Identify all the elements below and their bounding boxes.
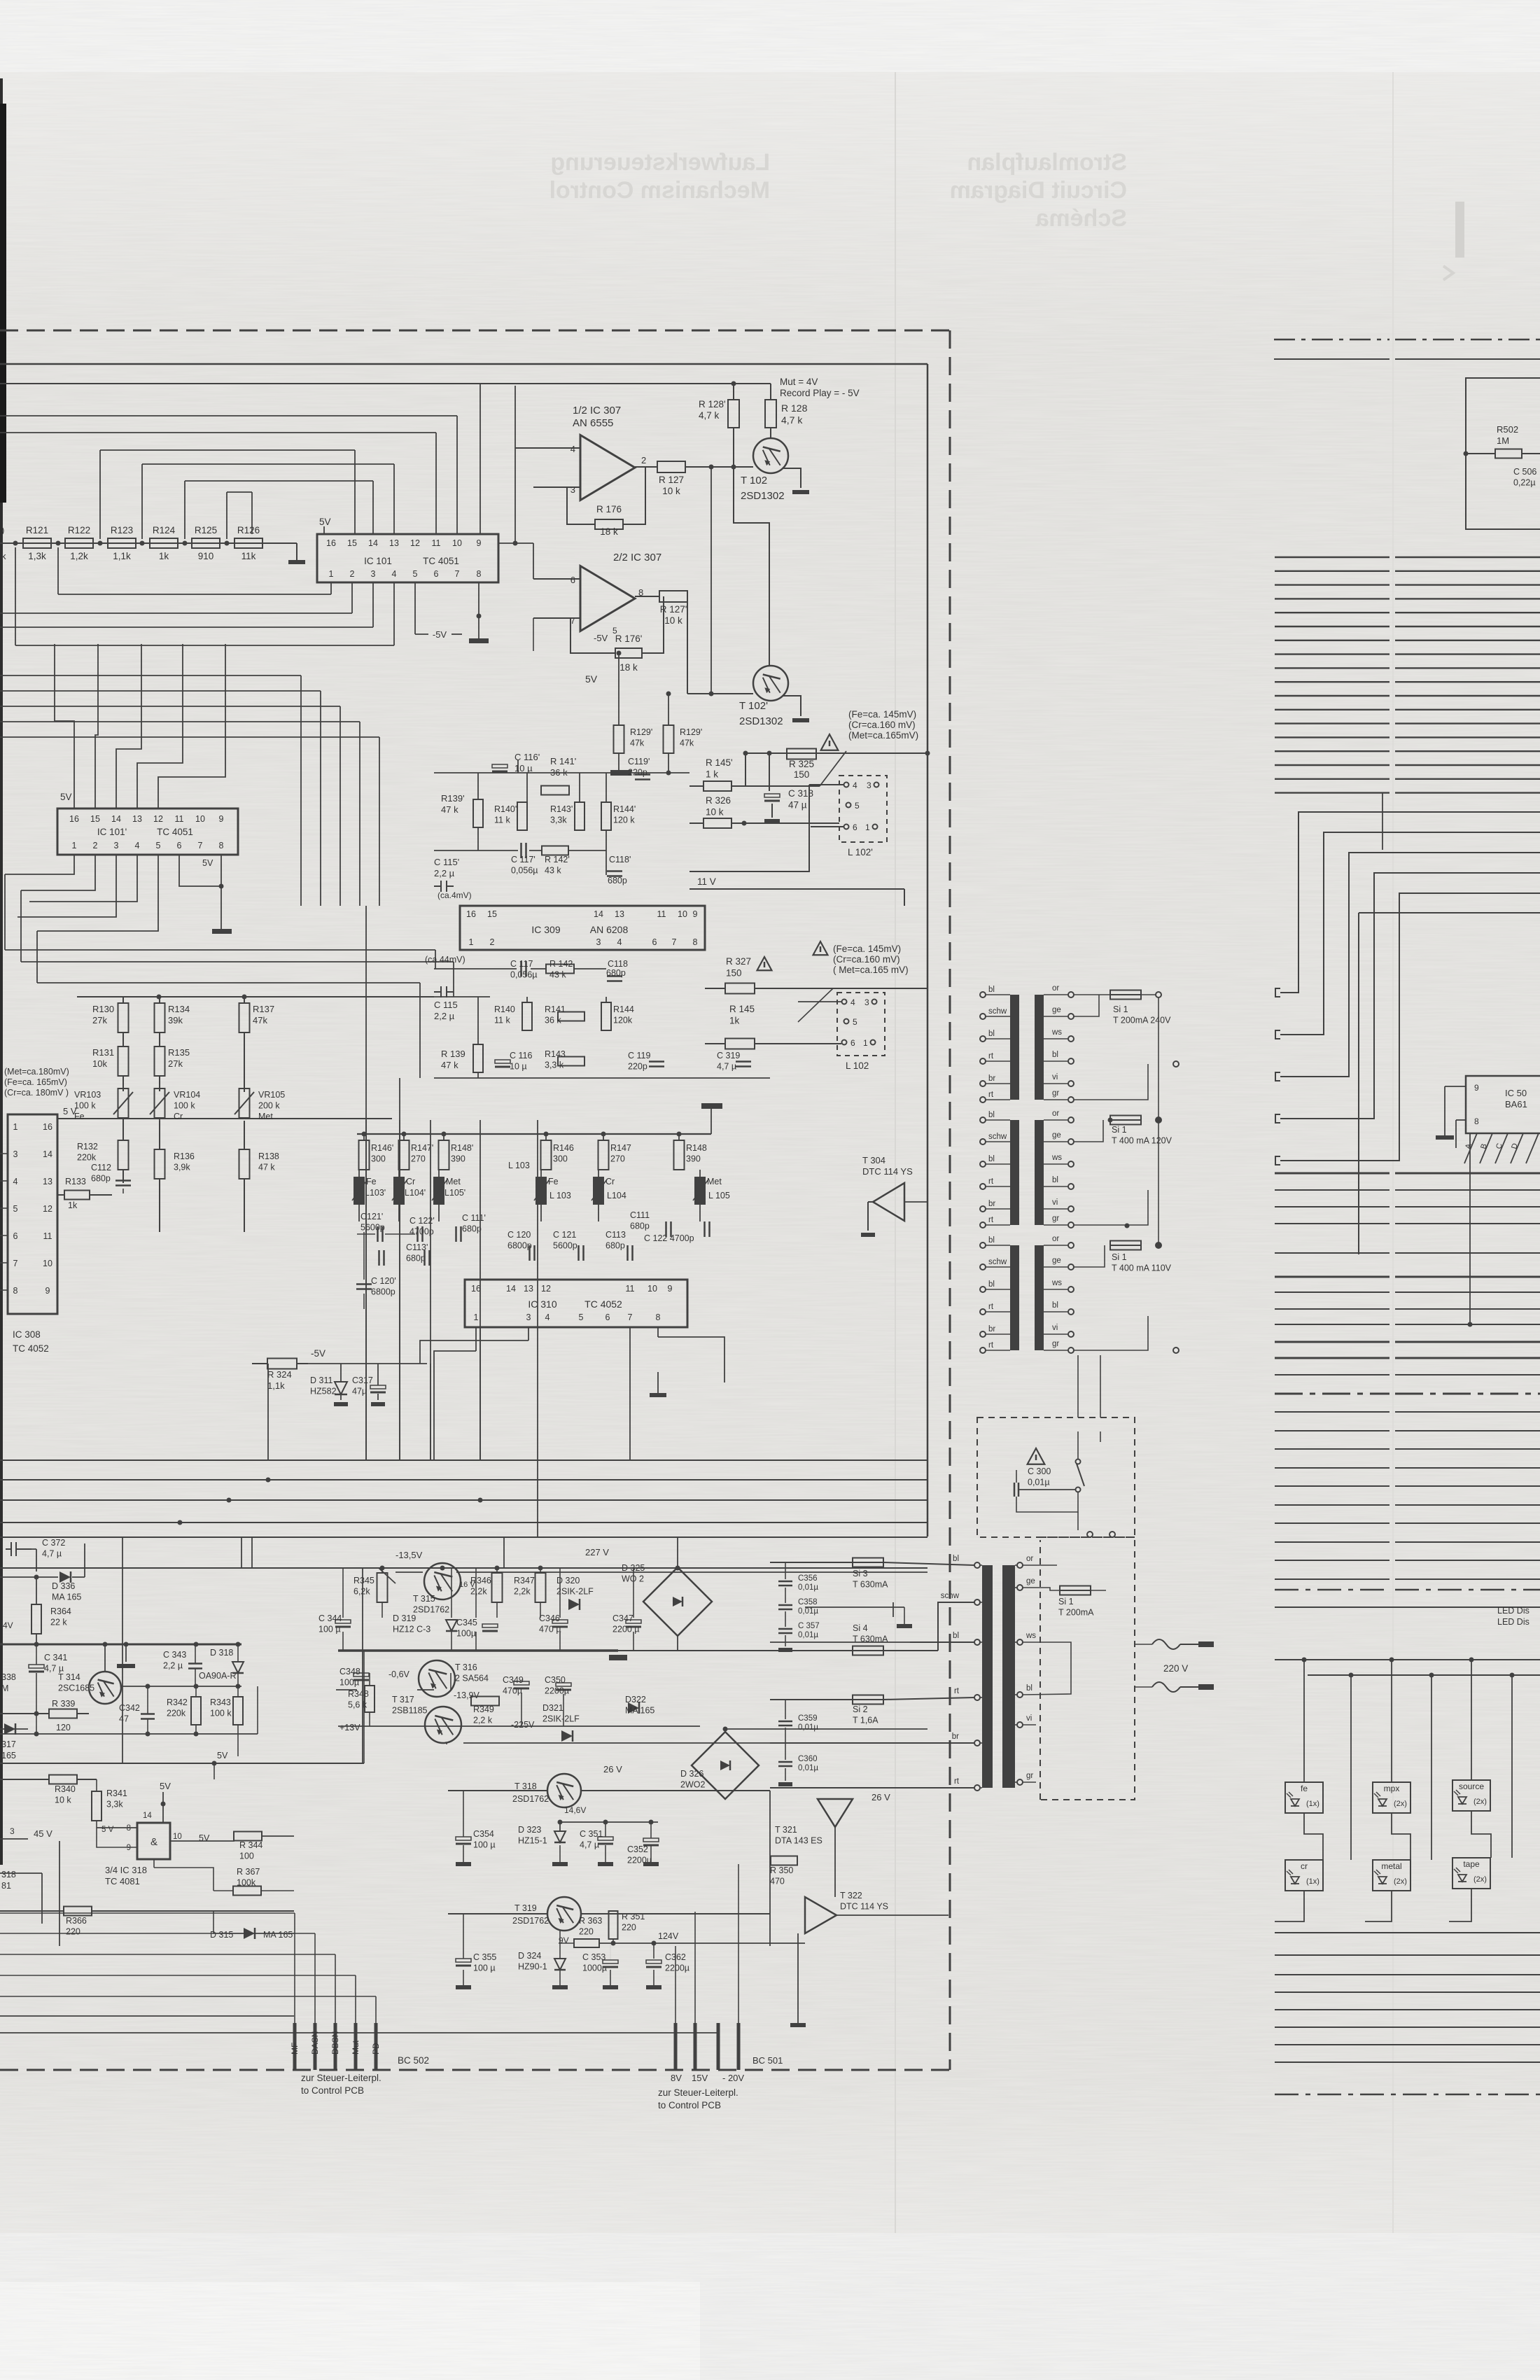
svg-text:14: 14 <box>43 1149 52 1159</box>
svg-text:R 350: R 350 <box>770 1865 793 1875</box>
svg-text:18 k: 18 k <box>600 526 618 537</box>
svg-text:D 326: D 326 <box>680 1769 703 1779</box>
svg-text:5V: 5V <box>202 858 213 868</box>
svg-text:9: 9 <box>668 1284 673 1294</box>
svg-text:C 111': C 111' <box>462 1213 486 1223</box>
svg-text:R137: R137 <box>253 1004 274 1014</box>
svg-text:4: 4 <box>850 997 855 1007</box>
svg-text:43 k: 43 k <box>545 866 561 876</box>
svg-text:4,7 k: 4,7 k <box>781 414 803 426</box>
svg-text:C348: C348 <box>339 1667 360 1676</box>
svg-text:26 V: 26 V <box>871 1792 890 1802</box>
svg-text:R125: R125 <box>195 525 217 535</box>
svg-text:2,2 µ: 2,2 µ <box>434 1011 455 1021</box>
svg-text:9: 9 <box>1474 1083 1479 1093</box>
svg-text:1M: 1M <box>1497 435 1509 446</box>
svg-text:schw: schw <box>941 1592 960 1600</box>
svg-text:C 116': C 116' <box>514 752 540 762</box>
svg-text:ws: ws <box>1051 1028 1062 1037</box>
svg-text:R 339: R 339 <box>52 1699 75 1709</box>
svg-text:910: 910 <box>198 551 214 561</box>
svg-text:3: 3 <box>526 1312 531 1322</box>
svg-text:(Cr=ca. 180mV ): (Cr=ca. 180mV ) <box>4 1088 69 1098</box>
svg-text:D321: D321 <box>542 1703 563 1713</box>
svg-text:16: 16 <box>69 814 79 824</box>
svg-text:C 319: C 319 <box>717 1051 740 1060</box>
svg-text:br: br <box>988 1200 995 1208</box>
svg-text:27k: 27k <box>168 1058 183 1069</box>
svg-text:2/2 IC 307: 2/2 IC 307 <box>613 552 661 563</box>
svg-text:R132: R132 <box>77 1142 98 1151</box>
svg-text:ge: ge <box>1052 1131 1061 1140</box>
svg-text:1/2 IC 307: 1/2 IC 307 <box>573 405 621 416</box>
svg-text:4: 4 <box>853 780 857 790</box>
svg-text:R123: R123 <box>111 525 133 535</box>
svg-text:C 300: C 300 <box>1028 1466 1051 1476</box>
svg-text:T 315: T 315 <box>413 1594 435 1604</box>
svg-text:14: 14 <box>506 1284 516 1294</box>
svg-text:3,9k: 3,9k <box>174 1163 190 1172</box>
svg-text:MA 165: MA 165 <box>263 1930 293 1940</box>
svg-text:C354: C354 <box>473 1829 494 1839</box>
svg-text:Cr: Cr <box>605 1177 615 1186</box>
svg-text:3: 3 <box>570 484 575 495</box>
svg-text:-0,6V: -0,6V <box>388 1669 410 1679</box>
svg-text:C113: C113 <box>605 1230 626 1240</box>
svg-text:Si 2: Si 2 <box>853 1704 868 1714</box>
svg-text:(Fe=ca. 145mV): (Fe=ca. 145mV) <box>833 944 901 954</box>
svg-text:T 304: T 304 <box>862 1155 885 1165</box>
svg-text:1k: 1k <box>159 551 169 561</box>
svg-text:(Met=ca.165mV): (Met=ca.165mV) <box>848 730 918 741</box>
svg-text:11 V: 11 V <box>697 876 716 887</box>
svg-text:R364: R364 <box>50 1606 71 1616</box>
svg-text:TC 4052: TC 4052 <box>13 1343 49 1354</box>
svg-text:C352: C352 <box>627 1844 648 1854</box>
svg-text:5600p: 5600p <box>553 1241 577 1251</box>
svg-text:227 V: 227 V <box>585 1547 609 1557</box>
svg-text:3: 3 <box>13 1149 18 1159</box>
svg-text:R133: R133 <box>65 1177 86 1186</box>
svg-text:T 200mA 240V: T 200mA 240V <box>1113 1016 1171 1025</box>
svg-text:220: 220 <box>622 1923 636 1933</box>
svg-text:2SD1762: 2SD1762 <box>512 1916 549 1926</box>
svg-text:5V: 5V <box>585 673 598 685</box>
svg-text:100 µ: 100 µ <box>473 1963 496 1973</box>
svg-text:C347: C347 <box>612 1613 633 1623</box>
svg-text:ws: ws <box>1051 1154 1062 1162</box>
svg-text:Laufwerksteuerung: Laufwerksteuerung <box>550 149 770 176</box>
svg-text:AN 6555: AN 6555 <box>573 417 613 429</box>
svg-text:R 326: R 326 <box>706 795 731 806</box>
svg-text:D 311: D 311 <box>310 1375 332 1385</box>
svg-text:2SIK-2LF: 2SIK-2LF <box>542 1714 580 1724</box>
svg-text:C 120': C 120' <box>371 1276 396 1286</box>
svg-text:R129': R129' <box>680 727 702 737</box>
svg-text:DASN: DASN <box>310 2031 320 2054</box>
svg-text:220 V: 220 V <box>1163 1663 1188 1674</box>
svg-text:rt: rt <box>988 1052 994 1060</box>
svg-text:1: 1 <box>863 1038 868 1048</box>
svg-text:100 k: 100 k <box>174 1101 195 1111</box>
svg-text:Si 1: Si 1 <box>1112 1125 1127 1135</box>
svg-text:43 k: 43 k <box>549 970 566 980</box>
svg-text:tape: tape <box>1463 1859 1480 1869</box>
svg-text:124V: 124V <box>658 1931 679 1941</box>
svg-text:3: 3 <box>371 569 376 579</box>
svg-text:39k: 39k <box>168 1015 183 1025</box>
svg-text:2: 2 <box>641 455 646 465</box>
svg-text:Fe: Fe <box>366 1177 377 1186</box>
svg-text:rt: rt <box>988 1177 994 1186</box>
svg-text:5: 5 <box>13 1204 18 1214</box>
svg-text:C346: C346 <box>539 1613 560 1623</box>
svg-text:Cr: Cr <box>174 1112 183 1121</box>
svg-text:12: 12 <box>43 1204 52 1214</box>
svg-text:10: 10 <box>647 1284 657 1294</box>
svg-text:bl: bl <box>988 986 995 994</box>
svg-text:bl: bl <box>988 1280 995 1289</box>
svg-text:R144': R144' <box>613 804 636 814</box>
svg-text:R 324: R 324 <box>267 1369 292 1380</box>
svg-text:13: 13 <box>524 1284 533 1294</box>
svg-text:D 323: D 323 <box>518 1825 541 1835</box>
svg-text:1,2k: 1,2k <box>70 551 88 561</box>
svg-text:(Fe=ca. 165mV): (Fe=ca. 165mV) <box>4 1077 67 1087</box>
svg-text:12: 12 <box>541 1284 551 1294</box>
svg-text:R140: R140 <box>494 1004 515 1014</box>
svg-text:6800p: 6800p <box>371 1287 395 1297</box>
svg-text:( Met=ca.165 mV): ( Met=ca.165 mV) <box>833 965 909 975</box>
svg-text:T 200mA: T 200mA <box>1058 1608 1094 1618</box>
svg-text:3/4 IC 318: 3/4 IC 318 <box>105 1865 147 1875</box>
svg-text:470 µ: 470 µ <box>539 1625 561 1634</box>
svg-text:10 k: 10 k <box>662 486 680 496</box>
svg-text:6800p: 6800p <box>507 1241 532 1251</box>
svg-text:16: 16 <box>326 538 336 548</box>
svg-text:Mut = 4V: Mut = 4V <box>780 377 818 387</box>
svg-text:(Met=ca.180mV): (Met=ca.180mV) <box>4 1067 69 1077</box>
svg-text:Si 3: Si 3 <box>853 1569 868 1578</box>
svg-text:47 k: 47 k <box>441 804 458 815</box>
svg-text:R 325: R 325 <box>789 759 814 769</box>
svg-text:R 127: R 127 <box>659 475 684 485</box>
svg-text:47 k: 47 k <box>441 1060 458 1070</box>
svg-text:TC 4051: TC 4051 <box>423 556 459 566</box>
svg-text:11 k: 11 k <box>494 1016 510 1025</box>
svg-text:schw: schw <box>988 1133 1007 1141</box>
svg-text:R146: R146 <box>553 1143 574 1153</box>
svg-text:5V: 5V <box>160 1781 171 1791</box>
svg-text:R347: R347 <box>514 1576 535 1585</box>
svg-text:7: 7 <box>455 569 460 579</box>
svg-text:11 k: 11 k <box>494 815 510 825</box>
svg-text:T 316: T 316 <box>455 1662 477 1672</box>
svg-text:br: br <box>988 1074 995 1083</box>
svg-text:C 120: C 120 <box>507 1230 531 1240</box>
svg-text:BC 501: BC 501 <box>752 2055 783 2066</box>
svg-text:R138: R138 <box>258 1151 279 1161</box>
svg-text:5: 5 <box>413 569 418 579</box>
svg-text:100k: 100k <box>237 1878 256 1888</box>
svg-text:7: 7 <box>672 937 677 947</box>
svg-text:36 k: 36 k <box>545 1016 561 1025</box>
svg-text:Fe: Fe <box>548 1177 559 1186</box>
svg-text:470: 470 <box>770 1877 785 1886</box>
svg-text:6: 6 <box>853 822 857 832</box>
svg-text:16: 16 <box>471 1284 481 1294</box>
svg-text:R139': R139' <box>441 793 465 804</box>
svg-text:source: source <box>1459 1781 1484 1791</box>
svg-text:vi: vi <box>1052 1073 1058 1081</box>
svg-text:R135: R135 <box>168 1047 190 1058</box>
svg-text:R143: R143 <box>545 1049 566 1059</box>
svg-text:&: & <box>150 1836 157 1848</box>
svg-text:+13V: +13V <box>339 1723 360 1732</box>
svg-text:2: 2 <box>93 841 98 850</box>
svg-text:14: 14 <box>143 1812 152 1820</box>
svg-text:317: 317 <box>1 1739 16 1749</box>
svg-text:0,01µ: 0,01µ <box>798 1583 818 1592</box>
svg-text:R 176': R 176' <box>615 633 643 644</box>
svg-text:3,3 k: 3,3 k <box>545 1060 564 1070</box>
svg-text:mpx: mpx <box>1384 1784 1400 1793</box>
svg-text:rt: rt <box>988 1091 994 1099</box>
svg-text:4: 4 <box>617 937 622 947</box>
svg-text:DTC 114 YS: DTC 114 YS <box>862 1166 913 1177</box>
svg-text:R 128: R 128 <box>781 402 808 414</box>
svg-text:T 102: T 102 <box>741 475 767 486</box>
svg-text:1,3k: 1,3k <box>28 551 46 561</box>
svg-text:bl: bl <box>1052 1301 1058 1310</box>
svg-text:br: br <box>988 1325 995 1333</box>
svg-text:165: 165 <box>1 1751 16 1760</box>
svg-text:10 µ: 10 µ <box>514 763 533 773</box>
svg-text:10: 10 <box>195 814 205 824</box>
svg-text:Cr: Cr <box>406 1177 415 1186</box>
svg-text:220p: 220p <box>628 1062 647 1072</box>
svg-text:-13,9V: -13,9V <box>454 1690 479 1700</box>
svg-text:vi: vi <box>1026 1714 1032 1723</box>
svg-text:1k: 1k <box>68 1200 78 1210</box>
svg-text:C118': C118' <box>609 855 631 864</box>
svg-text:9: 9 <box>219 814 224 824</box>
svg-text:Stromlaufplan: Stromlaufplan <box>967 149 1127 176</box>
svg-text:R345: R345 <box>353 1576 374 1585</box>
svg-text:gr: gr <box>1052 1089 1059 1098</box>
svg-text:C 506: C 506 <box>1513 467 1536 477</box>
svg-text:10: 10 <box>452 538 462 548</box>
svg-text:390: 390 <box>686 1154 701 1164</box>
svg-text:5V: 5V <box>319 517 331 527</box>
svg-text:R148: R148 <box>686 1143 707 1153</box>
svg-text:IC 309: IC 309 <box>531 924 560 935</box>
svg-text:T 400 mA 110V: T 400 mA 110V <box>1112 1263 1172 1273</box>
svg-text:to Control PCB: to Control PCB <box>301 2085 364 2096</box>
svg-text:100µ: 100µ <box>456 1629 476 1639</box>
svg-text:680p: 680p <box>630 1221 650 1231</box>
svg-text:6: 6 <box>434 569 439 579</box>
svg-text:47k: 47k <box>630 738 645 748</box>
svg-text:-13,5V: -13,5V <box>395 1550 423 1560</box>
svg-text:100µ: 100µ <box>339 1678 359 1688</box>
svg-text:C 355: C 355 <box>473 1952 496 1962</box>
svg-text:2SD1302: 2SD1302 <box>739 715 783 727</box>
svg-text:1,1k: 1,1k <box>267 1380 285 1391</box>
svg-text:1: 1 <box>72 841 77 850</box>
svg-text:47 k: 47 k <box>258 1163 275 1172</box>
svg-text:R348: R348 <box>348 1689 369 1699</box>
svg-text:D 319: D 319 <box>393 1613 416 1623</box>
svg-text:bl: bl <box>988 1236 995 1245</box>
svg-text:BA61: BA61 <box>1505 1099 1527 1109</box>
svg-text:1: 1 <box>13 1122 18 1132</box>
svg-text:L 102': L 102' <box>848 847 873 857</box>
svg-text:R349: R349 <box>473 1704 494 1714</box>
svg-text:4V: 4V <box>3 1620 13 1630</box>
svg-text:R 141': R 141' <box>550 756 576 766</box>
svg-text:13: 13 <box>43 1177 52 1186</box>
svg-text:or: or <box>1052 1235 1059 1243</box>
svg-text:120: 120 <box>56 1723 71 1732</box>
svg-text:C121': C121' <box>360 1212 383 1221</box>
svg-text:C 122 4700p: C 122 4700p <box>644 1233 694 1243</box>
svg-text:16: 16 <box>466 909 476 919</box>
svg-text:11: 11 <box>175 814 184 824</box>
svg-text:D 336: D 336 <box>52 1581 75 1591</box>
svg-text:(2x): (2x) <box>1394 1800 1407 1808</box>
svg-text:(Cr=ca.160 mV): (Cr=ca.160 mV) <box>833 954 900 965</box>
svg-text:5: 5 <box>855 801 860 811</box>
svg-text:C 115: C 115 <box>434 1000 458 1010</box>
svg-text:4,7 k: 4,7 k <box>699 410 720 421</box>
svg-text:10: 10 <box>173 1833 182 1841</box>
svg-text:bl: bl <box>953 1555 959 1563</box>
svg-text:C358: C358 <box>798 1598 818 1606</box>
svg-text:C 116: C 116 <box>510 1051 532 1060</box>
svg-text:R122: R122 <box>68 525 90 535</box>
svg-text:9: 9 <box>45 1286 50 1296</box>
svg-text:ge: ge <box>1052 1256 1061 1265</box>
svg-text:C118: C118 <box>608 959 628 969</box>
svg-text:ws: ws <box>1051 1279 1062 1287</box>
svg-text:7: 7 <box>13 1259 18 1268</box>
svg-text:rt: rt <box>988 1341 994 1350</box>
svg-text:6: 6 <box>13 1231 18 1241</box>
svg-text:6: 6 <box>570 575 575 585</box>
svg-text:zur Steuer-Leiterpl.: zur Steuer-Leiterpl. <box>301 2073 381 2083</box>
svg-text:2SD1302: 2SD1302 <box>741 490 785 502</box>
svg-text:200 k: 200 k <box>258 1101 280 1111</box>
svg-text:(ca.4mV): (ca.4mV) <box>437 890 472 900</box>
svg-text:0,056µ: 0,056µ <box>510 970 537 980</box>
svg-text:9: 9 <box>693 909 698 919</box>
svg-text:100 k: 100 k <box>210 1709 232 1718</box>
svg-text:D 318: D 318 <box>210 1648 233 1658</box>
svg-text:C359: C359 <box>798 1714 818 1723</box>
svg-text:C 344: C 344 <box>318 1613 342 1623</box>
svg-text:0,01µ: 0,01µ <box>1028 1478 1050 1487</box>
svg-text:bl: bl <box>1052 1176 1058 1184</box>
svg-text:Met: Met <box>446 1177 461 1186</box>
svg-text:318: 318 <box>1 1870 16 1879</box>
svg-text:-5V: -5V <box>594 633 608 643</box>
svg-text:MA 165: MA 165 <box>625 1706 654 1716</box>
svg-text:R 145': R 145' <box>706 757 733 768</box>
svg-text:WO 2: WO 2 <box>622 1574 644 1584</box>
svg-text:6: 6 <box>652 937 657 947</box>
svg-text:C 117: C 117 <box>510 959 533 969</box>
svg-text:15: 15 <box>90 814 100 824</box>
svg-text:DTA 143 ES: DTA 143 ES <box>775 1836 822 1846</box>
svg-text:270: 270 <box>610 1154 625 1164</box>
svg-text:1 k: 1 k <box>706 769 718 780</box>
svg-text:5600p: 5600p <box>360 1223 385 1233</box>
svg-text:to Control PCB: to Control PCB <box>658 2100 721 2110</box>
svg-text:5V: 5V <box>217 1751 228 1760</box>
svg-text:R147: R147 <box>610 1143 631 1153</box>
svg-text:T 102': T 102' <box>739 700 768 712</box>
svg-text:100 µ: 100 µ <box>318 1625 341 1634</box>
svg-text:DTC 114 YS: DTC 114 YS <box>840 1902 888 1912</box>
svg-text:11: 11 <box>626 1284 635 1294</box>
svg-text:5 V: 5 V <box>63 1106 77 1116</box>
svg-text:5: 5 <box>579 1312 584 1322</box>
svg-text:R 145: R 145 <box>729 1004 755 1014</box>
svg-text:2SIK-2LF: 2SIK-2LF <box>556 1587 594 1597</box>
svg-text:10k: 10k <box>92 1058 107 1069</box>
svg-text:680p: 680p <box>608 876 627 885</box>
svg-text:C119': C119' <box>628 757 650 766</box>
svg-text:C345: C345 <box>456 1618 477 1627</box>
svg-text:R143': R143' <box>550 804 573 814</box>
svg-text:): ) <box>1 525 4 535</box>
svg-text:R366: R366 <box>66 1916 87 1926</box>
svg-text:C317: C317 <box>352 1375 373 1385</box>
svg-text:270: 270 <box>411 1154 426 1164</box>
svg-text:IC 101': IC 101' <box>97 827 127 837</box>
svg-text:Si 1: Si 1 <box>1113 1004 1128 1014</box>
svg-text:T 318: T 318 <box>514 1781 537 1791</box>
svg-text:Si 1: Si 1 <box>1058 1597 1074 1606</box>
svg-text:R 363: R 363 <box>579 1916 602 1926</box>
svg-text:HZ582: HZ582 <box>310 1387 337 1396</box>
svg-text:4: 4 <box>135 841 140 850</box>
svg-text:3,3k: 3,3k <box>106 1800 123 1809</box>
svg-text:R502: R502 <box>1497 424 1518 435</box>
svg-text:22 k: 22 k <box>50 1618 67 1627</box>
svg-text:C 357: C 357 <box>798 1622 820 1630</box>
svg-text:3,3k: 3,3k <box>550 815 567 825</box>
svg-text:M: M <box>1 1683 8 1693</box>
svg-text:L104': L104' <box>405 1188 426 1198</box>
svg-text:R126: R126 <box>237 525 260 535</box>
svg-text:OA90A-R: OA90A-R <box>199 1671 237 1681</box>
svg-text:26 V: 26 V <box>603 1764 622 1774</box>
svg-text:6: 6 <box>850 1038 855 1048</box>
svg-text:C 115': C 115' <box>434 857 459 867</box>
svg-text:2,2 k: 2,2 k <box>473 1716 493 1725</box>
svg-text:C 121: C 121 <box>553 1230 576 1240</box>
svg-text:TC 4051: TC 4051 <box>157 827 193 837</box>
svg-text:338: 338 <box>1 1672 16 1682</box>
svg-text:bl: bl <box>1052 1051 1058 1059</box>
svg-text:R 176: R 176 <box>596 504 622 514</box>
svg-text:R141: R141 <box>545 1004 566 1014</box>
svg-text:150: 150 <box>726 968 742 979</box>
svg-text:L103': L103' <box>365 1188 386 1198</box>
svg-text:D 324: D 324 <box>518 1951 541 1961</box>
